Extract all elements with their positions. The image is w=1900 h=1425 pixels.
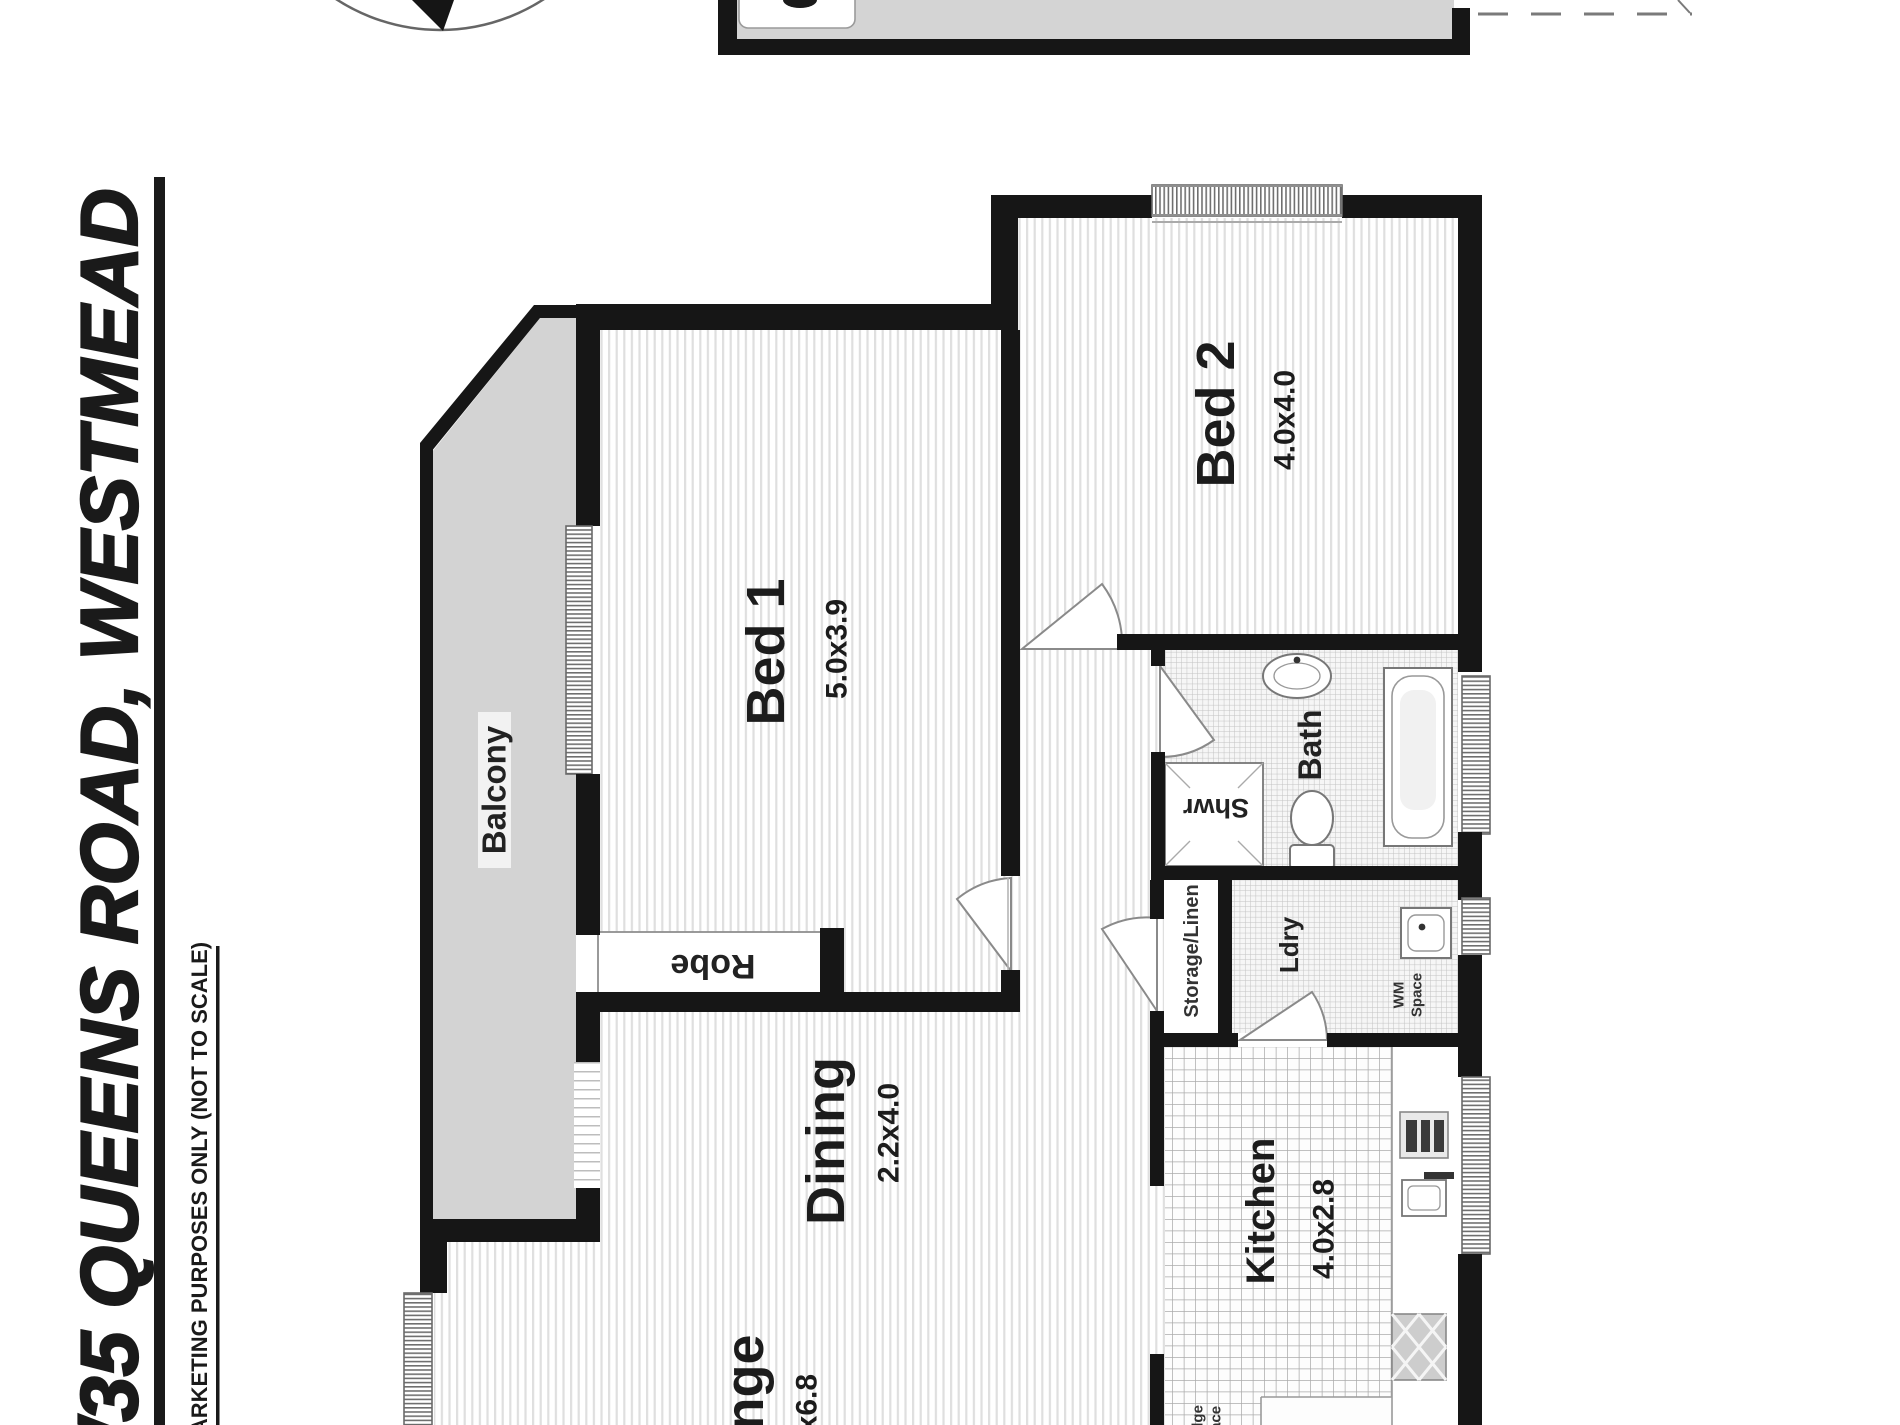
- svg-text:2.2x4.0: 2.2x4.0: [873, 1083, 906, 1183]
- svg-text:Fridge: Fridge: [1190, 1405, 1207, 1425]
- svg-text:5/35 QUEENS ROAD, WESTMEAD: 5/35 QUEENS ROAD, WESTMEAD: [65, 188, 155, 1425]
- svg-text:4.0x4.0: 4.0x4.0: [1269, 370, 1302, 470]
- svg-text:Storage/Linen: Storage/Linen: [1181, 884, 1203, 1017]
- svg-text:Lounge: Lounge: [715, 1335, 775, 1425]
- svg-text:Shwr: Shwr: [1183, 793, 1250, 823]
- svg-text:4.5x6.8: 4.5x6.8: [791, 1374, 824, 1425]
- svg-text:Bath: Bath: [1292, 709, 1328, 780]
- svg-text:Ldry: Ldry: [1274, 916, 1304, 973]
- svg-text:Robe: Robe: [671, 947, 756, 985]
- svg-text:Space: Space: [1409, 973, 1426, 1017]
- svg-text:Space: Space: [1208, 1406, 1225, 1425]
- svg-text:4.0x2.8: 4.0x2.8: [1308, 1179, 1341, 1279]
- svg-text:FOR MARKETING PURPOSES ONLY (N: FOR MARKETING PURPOSES ONLY (NOT TO SCAL…: [187, 942, 212, 1425]
- svg-text:WM: WM: [1391, 982, 1408, 1009]
- svg-text:Bed 1: Bed 1: [736, 578, 796, 725]
- svg-text:5.0x3.9: 5.0x3.9: [821, 599, 854, 699]
- svg-text:Balcony: Balcony: [476, 725, 513, 854]
- svg-text:Bed 2: Bed 2: [1186, 340, 1246, 487]
- svg-text:Kitchen: Kitchen: [1239, 1138, 1283, 1285]
- svg-text:Dining: Dining: [796, 1057, 856, 1225]
